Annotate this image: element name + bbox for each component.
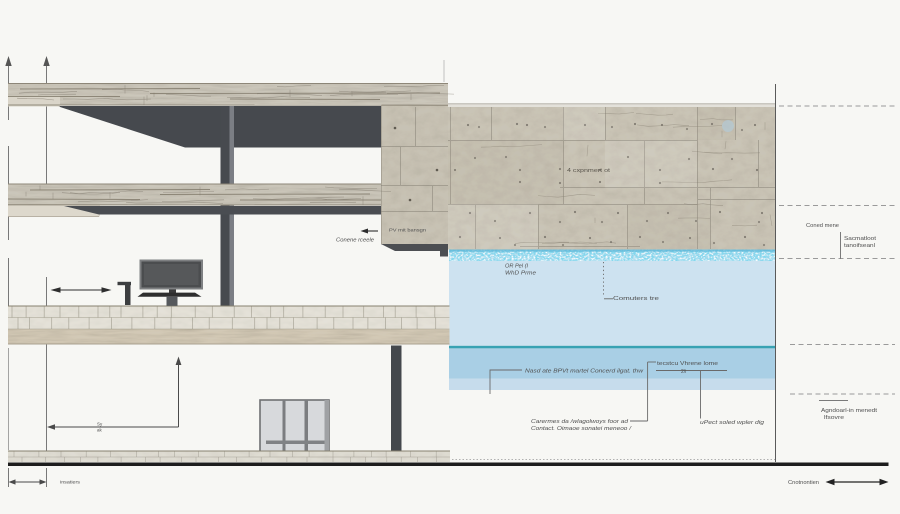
svg-text:2/i: 2/i [681, 369, 686, 375]
svg-text:Comuters tre: Comuters tre [613, 296, 659, 302]
svg-text:lfsovre: lfsovre [824, 415, 844, 421]
svg-text:Conene rceele: Conene rceele [336, 238, 374, 244]
svg-text:4 cxpnmert ot: 4 cxpnmert ot [567, 168, 611, 174]
svg-text:OR Pel (I: OR Pel (I [505, 264, 529, 270]
svg-text:PV mit bansgn: PV mit bansgn [389, 228, 427, 233]
svg-text:Coned mene: Coned mene [806, 223, 839, 229]
svg-text:Sacmatloot: Sacmatloot [844, 236, 877, 242]
svg-text:Sy: Sy [97, 422, 103, 427]
svg-text:Cnotnontien: Cnotnontien [788, 480, 819, 486]
svg-text:Contact. Oimaoe sonatei meneoo: Contact. Oimaoe sonatei meneoo / [531, 426, 632, 432]
svg-text:WhD Prme: WhD Prme [505, 271, 536, 277]
svg-text:tecstcu Vhrene lome: tecstcu Vhrene lome [657, 361, 718, 367]
svg-text:Carermes da /wlagolwoys foor a: Carermes da /wlagolwoys foor ad [531, 419, 628, 425]
svg-text:Agndoarl-in menedt: Agndoarl-in menedt [821, 408, 878, 414]
svg-text:insatiers: insatiers [60, 480, 81, 485]
svg-text:uPect soled wpler dig: uPect soled wpler dig [700, 420, 764, 426]
svg-text:tanoifseanl: tanoifseanl [844, 243, 875, 249]
svg-text:Nasd ate BPVt martel Concerd i: Nasd ate BPVt martel Concerd ilgat. thw [525, 369, 643, 375]
svg-text:ak: ak [97, 428, 103, 433]
